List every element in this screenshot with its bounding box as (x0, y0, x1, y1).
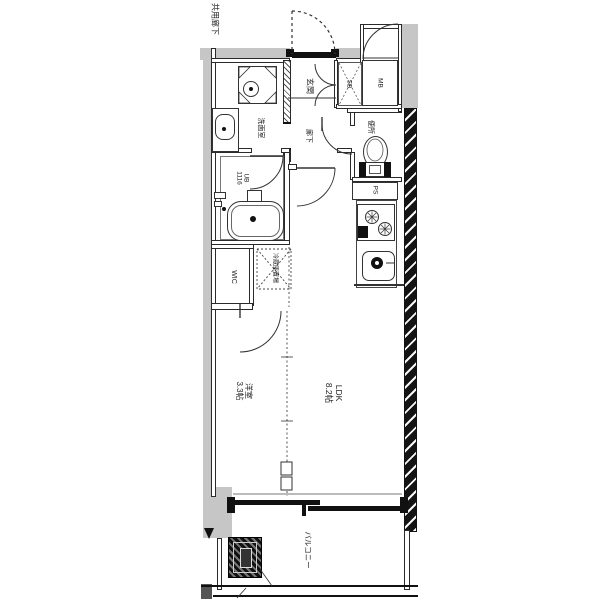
linework-overlay (0, 0, 600, 600)
stove-burner-spokes (367, 212, 391, 235)
label-unit-bath-name: UB (242, 171, 249, 185)
toilet-door-arc (322, 117, 352, 154)
label-pipe-space: PS (371, 186, 378, 195)
label-unit-bath-size: 1116 (235, 171, 242, 185)
label-common-corridor: 共用廊下 (210, 3, 219, 35)
entry-door-swing-arc (292, 11, 335, 54)
washing-pan-corner-triangles (239, 67, 276, 103)
bath-door-arc (250, 156, 283, 189)
toilet-seat-inner (367, 139, 383, 161)
label-ldk: LDK 8.2帖 (323, 383, 343, 403)
shoe-box-double-door-arcs (315, 64, 336, 106)
label-hallway: 廊下 (304, 129, 312, 143)
label-ldk-name: LDK (333, 383, 343, 403)
railing-break-mark (237, 588, 246, 598)
label-unit-bath: UB 1116 (235, 171, 250, 185)
label-western-room: 洋室 3.3帖 (235, 381, 253, 400)
label-western-room-name: 洋室 (244, 381, 253, 400)
label-western-room-size: 3.3帖 (235, 381, 244, 400)
partition-panel-stack (281, 462, 292, 490)
label-balcony: バルコニー (303, 531, 312, 568)
ldk-boundary-dotted (287, 247, 289, 496)
label-washroom: 洗面室 (256, 118, 264, 139)
label-entrance: 玄関 (305, 78, 314, 94)
label-wic: WIC (229, 270, 237, 284)
label-shoe-box: SB (345, 80, 352, 89)
label-ldk-size: 8.2帖 (323, 383, 333, 403)
label-meter-box: MB (376, 78, 383, 88)
meter-box-door-arc (363, 24, 398, 59)
hall-ldk-door-arc (297, 168, 335, 206)
floor-plan: 共用廊下 玄関 SB MB 便所 廊下 洗面室 UB 1116 WIC 冷蔵庫置… (0, 0, 600, 600)
hatch-leader-line (260, 569, 272, 586)
label-toilet: 便所 (366, 120, 374, 134)
label-refrigerator-space: 冷蔵庫置場 (271, 253, 278, 283)
western-room-door-arc (240, 304, 281, 352)
